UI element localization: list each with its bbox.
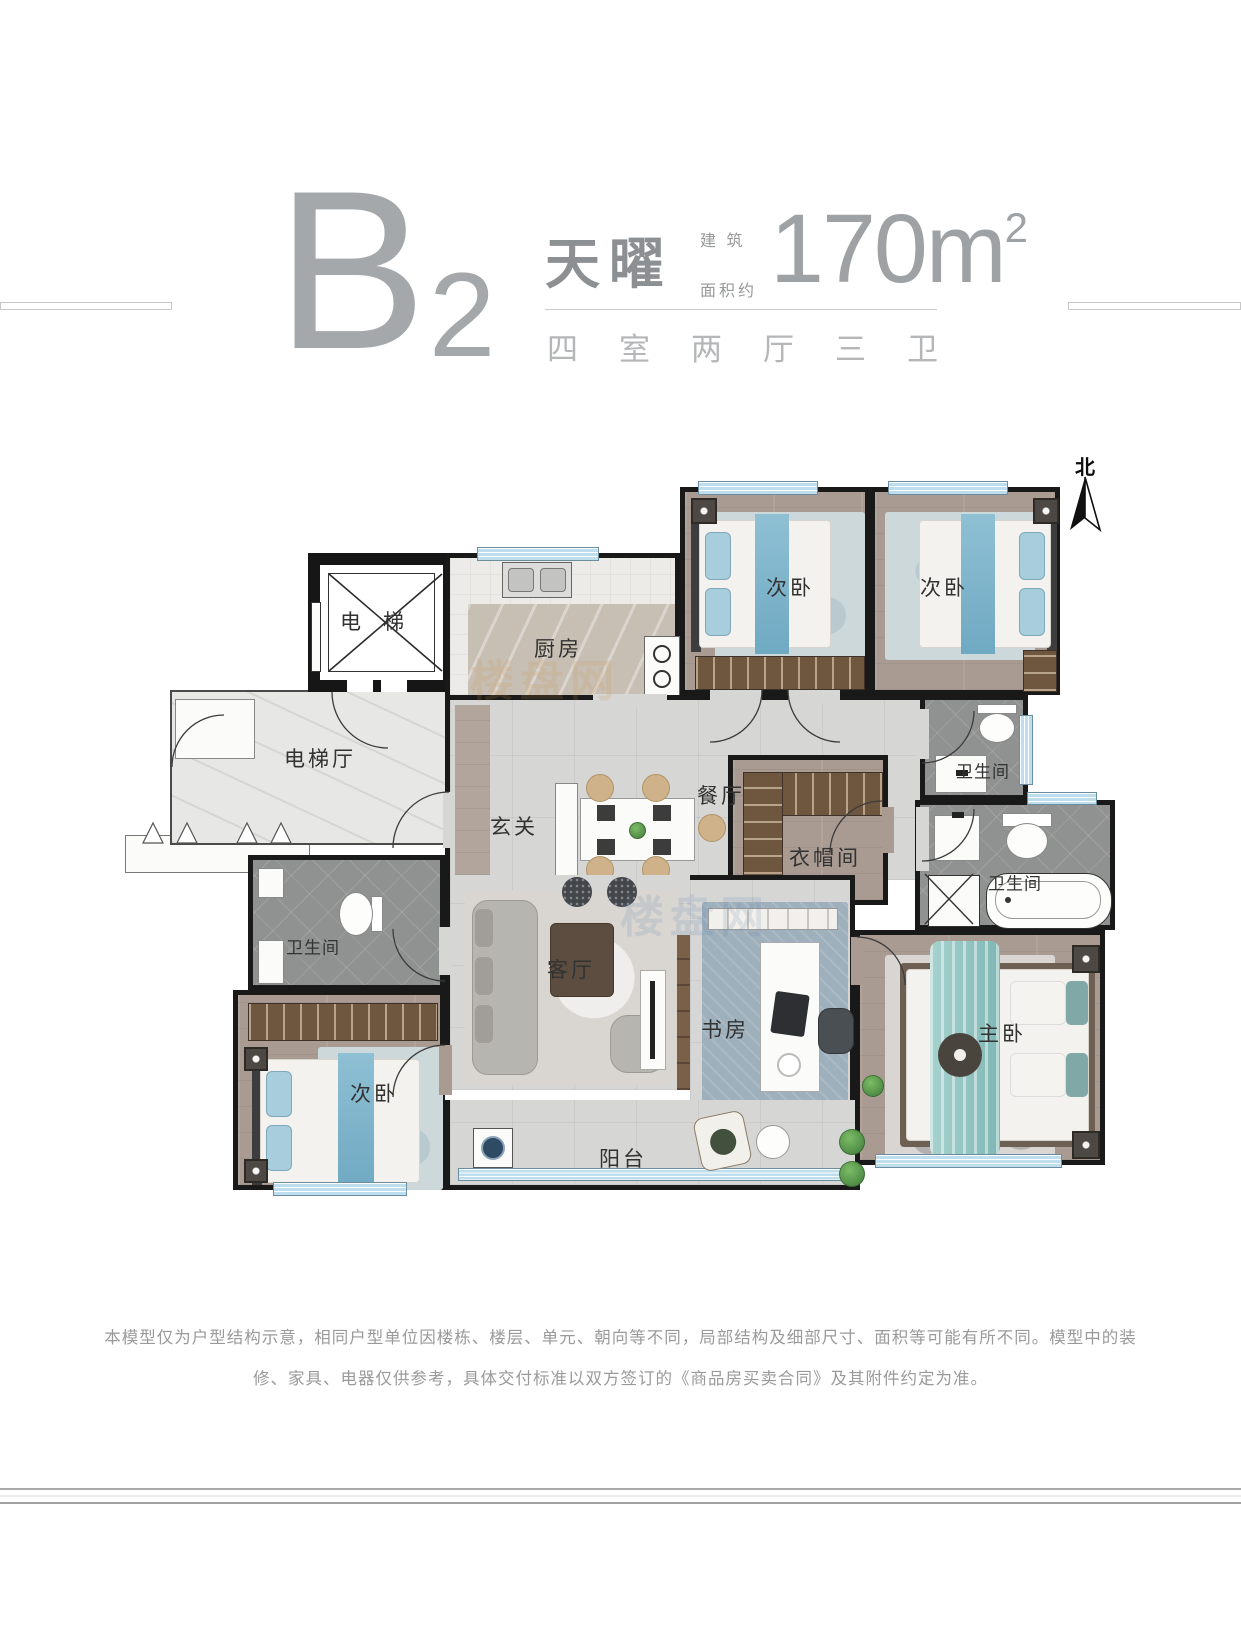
- room-label-dining: 餐厅: [697, 780, 745, 810]
- area-label: 建 筑 面积约: [700, 229, 757, 304]
- sink-basin: [508, 568, 534, 592]
- toilet: [1006, 823, 1048, 859]
- left-header-rule: [0, 302, 172, 310]
- room-label-cloakroom: 衣帽间: [789, 842, 861, 872]
- ac-unit: [1033, 498, 1059, 524]
- area-value: 170m 2: [770, 200, 1028, 297]
- ac-unit: [1072, 1131, 1100, 1159]
- pillow: [1010, 1053, 1066, 1097]
- plant: [839, 1161, 865, 1187]
- round-table: [756, 1125, 790, 1159]
- room-label-elevator: 电梯: [340, 606, 426, 636]
- bath-sink: [258, 940, 284, 984]
- toilet: [339, 892, 373, 936]
- placemat: [597, 805, 615, 821]
- kitchen-stove: [644, 636, 680, 696]
- bottom-rule: [0, 1488, 1241, 1490]
- window: [273, 1182, 407, 1196]
- lamp: [954, 1049, 966, 1061]
- dining-table: [580, 798, 695, 861]
- pillow: [1066, 1053, 1088, 1097]
- watermark: 楼盘网: [620, 881, 770, 945]
- room-bath-c: [248, 855, 445, 990]
- toilet: [979, 713, 1015, 743]
- dining-chair: [698, 814, 726, 842]
- ottoman: [562, 877, 592, 907]
- window: [477, 547, 599, 561]
- closet: [695, 656, 865, 690]
- ac-unit: [244, 1159, 268, 1183]
- closet: [1023, 650, 1057, 692]
- bath-sink: [934, 815, 980, 861]
- sideboard: [555, 783, 578, 878]
- disclaimer-line2: 修、家具、电器仅供参考，具体交付标准以双方签订的《商品房买卖合同》及其附件约定为…: [0, 1359, 1241, 1400]
- window: [1027, 792, 1097, 805]
- pillow: [1019, 532, 1045, 580]
- desk: [760, 942, 820, 1092]
- pillow: [266, 1125, 292, 1171]
- area-superscript: 2: [1005, 207, 1028, 304]
- sofa-cushion: [475, 909, 493, 947]
- placemat: [597, 839, 615, 855]
- room-label-bath-a: 卫生间: [956, 758, 1010, 783]
- room-label-elevator-hall: 电梯厅: [284, 743, 356, 773]
- sofa-cushion: [475, 957, 493, 995]
- room-label-study: 书房: [701, 1014, 749, 1044]
- tv-console: [640, 970, 666, 1070]
- stove-burner: [653, 645, 671, 663]
- pillow: [1019, 588, 1045, 636]
- area-label-line1: 建 筑: [700, 233, 745, 250]
- watermark: 楼盘网: [470, 645, 620, 709]
- room-bath-a: [920, 695, 1028, 800]
- floor-plan: 电梯 电梯厅 厨房 次卧 次卧 卫生间 餐厅 玄关 衣帽间 卫生间 卫生间 客厅…: [125, 445, 1115, 1200]
- bed-runner: [338, 1053, 374, 1189]
- desk-cup: [777, 1053, 801, 1077]
- door-gap: [439, 927, 452, 975]
- window: [1019, 715, 1033, 785]
- sofa: [472, 900, 538, 1075]
- window: [875, 1154, 1062, 1168]
- shower: [928, 875, 980, 927]
- door-gap: [916, 709, 929, 759]
- stove-burner: [653, 670, 671, 688]
- right-header-rule: [1068, 302, 1241, 310]
- side-table: [938, 1033, 982, 1077]
- disclaimer-line1: 本模型仅为户型结构示意，相同户型单位因楼栋、楼层、单元、朝向等不同，局部结构及细…: [0, 1318, 1241, 1359]
- table-plant: [629, 822, 646, 839]
- laptop: [770, 991, 810, 1037]
- chair-cushion: [708, 1126, 739, 1157]
- window: [888, 481, 1008, 495]
- elevator-door-gap: [381, 680, 407, 692]
- door-gap: [439, 1045, 452, 1095]
- foyer-wood-strip: [455, 705, 490, 875]
- room-label-balcony: 阳台: [599, 1143, 647, 1173]
- ac-unit: [244, 1047, 268, 1071]
- room-label-bedroom-b: 次卧: [920, 572, 968, 602]
- room-label-foyer: 玄关: [490, 811, 538, 841]
- room-label-bedroom-c: 次卧: [350, 1078, 398, 1108]
- bathtub-drain: [1005, 897, 1011, 903]
- balcony-glass: [458, 1168, 851, 1181]
- area-label-line2: 面积约: [700, 283, 757, 300]
- unit-code: B 2: [276, 182, 496, 358]
- sink-basin: [540, 568, 566, 592]
- room-label-master: 主卧: [978, 1018, 1026, 1048]
- desk-chair: [818, 1008, 854, 1054]
- door-gap: [788, 690, 840, 704]
- window: [698, 481, 818, 495]
- room-bedroom-c: [233, 990, 445, 1190]
- header-divider: [545, 309, 937, 310]
- door-gap: [710, 690, 762, 704]
- room-bath-b: [915, 800, 1115, 930]
- elevator-door-gap: [347, 680, 373, 692]
- door-gap: [851, 937, 863, 985]
- disclaimer: 本模型仅为户型结构示意，相同户型单位因楼栋、楼层、单元、朝向等不同，局部结构及细…: [0, 1318, 1241, 1400]
- room-label-bath-c: 卫生间: [286, 934, 340, 959]
- room-label-bedroom-a: 次卧: [766, 572, 814, 602]
- pillow: [705, 532, 731, 580]
- room-label-bath-b: 卫生间: [988, 870, 1042, 895]
- unit-number: 2: [429, 272, 496, 358]
- dining-chair: [642, 774, 670, 802]
- bottom-rule: [0, 1502, 1241, 1504]
- ac-unit: [691, 498, 717, 524]
- tv: [650, 981, 655, 1059]
- dining-chair: [586, 774, 614, 802]
- placemat: [653, 839, 671, 855]
- pillow: [1066, 981, 1088, 1025]
- ac-unit: [1072, 945, 1100, 973]
- duct-box: [175, 699, 255, 759]
- project-name: 天曜: [545, 219, 673, 299]
- door-gap: [882, 807, 894, 853]
- sofa-cushion: [475, 1005, 493, 1043]
- pillow: [266, 1071, 292, 1117]
- lounge-chair: [692, 1109, 753, 1172]
- placemat: [653, 805, 671, 821]
- pillow: [705, 588, 731, 636]
- faucet: [952, 812, 964, 818]
- door-gap: [916, 807, 929, 871]
- bottom-rule-light: [0, 1495, 1241, 1497]
- bath-cabinet: [258, 868, 284, 898]
- elevator-niche: [311, 602, 321, 672]
- closet: [743, 772, 783, 892]
- plant: [862, 1075, 884, 1097]
- room-label-living: 客厅: [547, 954, 595, 984]
- closet: [248, 1003, 438, 1041]
- unit-letter: B: [276, 182, 427, 358]
- kitchen-sink: [502, 562, 572, 598]
- area-number: 170m: [770, 200, 1005, 297]
- plant: [839, 1129, 865, 1155]
- layout-summary: 四室两厅三卫: [547, 324, 979, 369]
- room-balcony: [445, 1100, 860, 1190]
- floorplan-page: B 2 天曜 建 筑 面积约 170m 2 四室两厅三卫 北: [0, 0, 1241, 1638]
- washer-drum: [481, 1136, 505, 1160]
- door-gap: [443, 792, 455, 848]
- washing-machine: [473, 1128, 513, 1168]
